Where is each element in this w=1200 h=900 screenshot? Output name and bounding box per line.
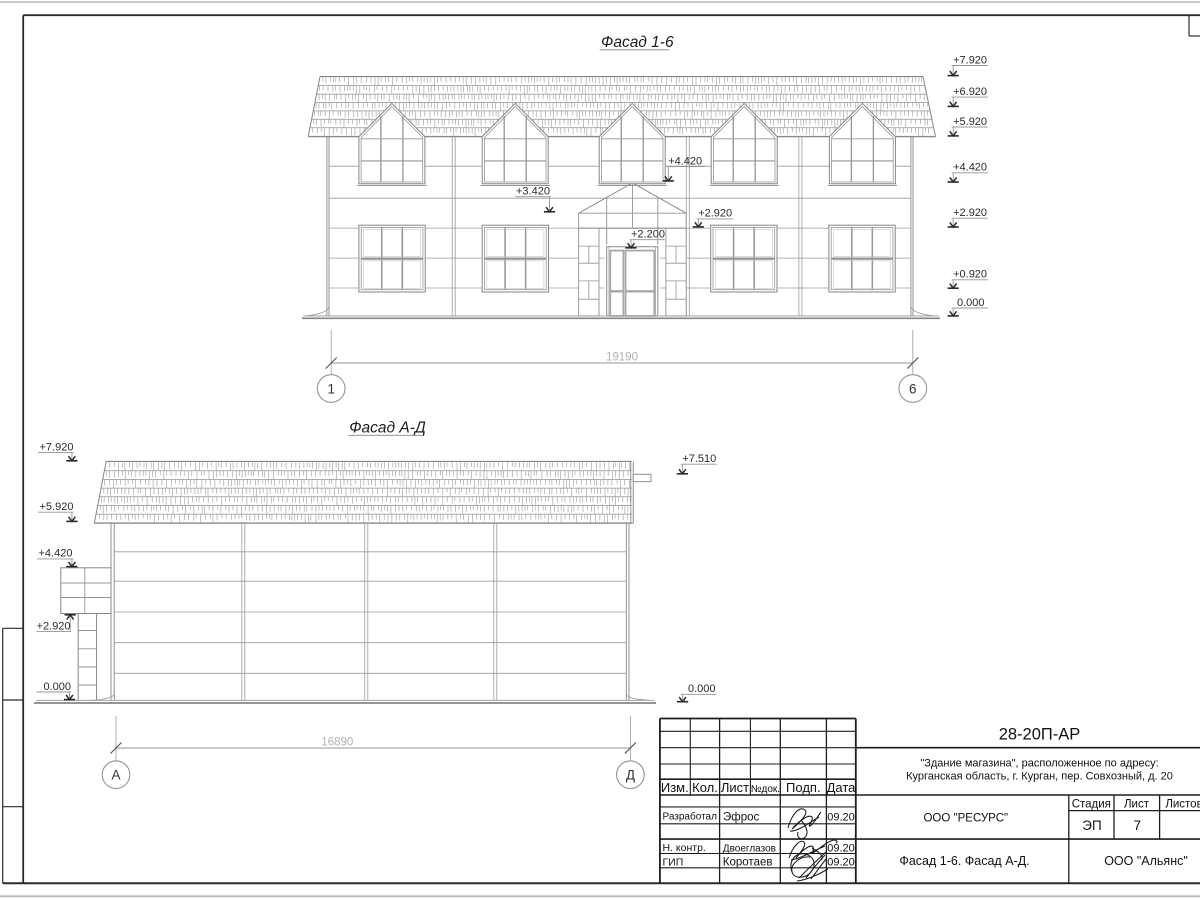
svg-text:+2.200: +2.200 <box>631 229 665 241</box>
svg-text:09.20: 09.20 <box>827 811 855 823</box>
svg-text:Лист: Лист <box>1124 798 1150 810</box>
svg-text:0.000: 0.000 <box>44 681 72 693</box>
svg-text:Лист: Лист <box>721 780 749 795</box>
svg-text:6: 6 <box>909 381 917 396</box>
svg-text:+4.420: +4.420 <box>39 548 73 560</box>
svg-text:"Здание магазина", расположенн: "Здание магазина", расположенное по адре… <box>920 757 1158 769</box>
svg-text:19190: 19190 <box>606 352 638 364</box>
svg-text:Курганская область, г. Курган,: Курганская область, г. Курган, пер. Совх… <box>906 771 1173 783</box>
svg-text:ООО "РЕСУРС": ООО "РЕСУРС" <box>923 812 1008 824</box>
svg-text:ГИП: ГИП <box>663 856 684 868</box>
svg-text:Листов: Листов <box>1165 798 1200 810</box>
svg-text:Эфрос: Эфрос <box>723 811 760 823</box>
svg-text:+4.420: +4.420 <box>953 162 987 174</box>
svg-text:Н. контр.: Н. контр. <box>663 842 706 854</box>
svg-text:Стадия: Стадия <box>1072 798 1111 810</box>
svg-text:Д: Д <box>626 768 635 783</box>
svg-text:А: А <box>111 768 120 783</box>
svg-text:+2.920: +2.920 <box>698 208 732 220</box>
svg-text:+0.920: +0.920 <box>953 269 987 281</box>
svg-text:+5.920: +5.920 <box>40 501 74 513</box>
svg-text:+5.920: +5.920 <box>953 116 987 128</box>
svg-text:ООО "Альянс": ООО "Альянс" <box>1104 854 1188 868</box>
svg-text:+2.920: +2.920 <box>37 620 71 632</box>
svg-text:Дата: Дата <box>827 780 857 795</box>
svg-text:+7.920: +7.920 <box>953 54 987 66</box>
svg-text:28-20П-АР: 28-20П-АР <box>999 726 1081 744</box>
svg-text:16890: 16890 <box>321 737 353 749</box>
svg-text:Фасад 1-6: Фасад 1-6 <box>601 34 674 51</box>
svg-text:09.20: 09.20 <box>827 842 855 854</box>
svg-text:+2.920: +2.920 <box>953 207 987 219</box>
svg-text:№док.: №док. <box>751 784 780 795</box>
svg-text:0.000: 0.000 <box>688 683 716 695</box>
svg-text:7: 7 <box>1134 818 1142 833</box>
svg-text:+3.420: +3.420 <box>516 186 550 198</box>
svg-text:+6.920: +6.920 <box>953 86 987 98</box>
svg-text:Изм.: Изм. <box>661 780 689 795</box>
svg-text:+7.510: +7.510 <box>682 453 716 465</box>
svg-text:Фасад 1-6. Фасад А-Д.: Фасад 1-6. Фасад А-Д. <box>899 854 1029 868</box>
svg-text:0.000: 0.000 <box>957 297 985 309</box>
svg-text:+4.420: +4.420 <box>668 155 702 167</box>
svg-text:Двоеглазов: Двоеглазов <box>723 843 776 854</box>
svg-text:1: 1 <box>327 381 335 396</box>
svg-text:+7.920: +7.920 <box>40 441 74 453</box>
svg-text:Подп.: Подп. <box>786 780 821 795</box>
svg-text:Разработал: Разработал <box>663 810 718 822</box>
svg-text:09.20: 09.20 <box>827 857 855 869</box>
svg-text:Коротаев: Коротаев <box>723 857 773 869</box>
svg-text:Кол.: Кол. <box>692 780 718 795</box>
svg-text:Фасад А-Д: Фасад А-Д <box>349 420 426 437</box>
svg-text:ЭП: ЭП <box>1082 818 1101 833</box>
